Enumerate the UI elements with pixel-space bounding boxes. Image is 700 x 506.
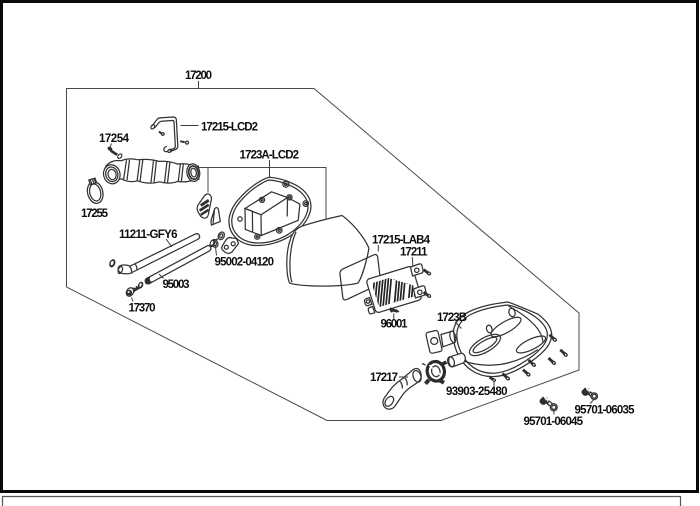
svg-text:17215-LAB4: 17215-LAB4 <box>372 235 431 247</box>
svg-text:95701-06045: 95701-06045 <box>524 416 584 428</box>
svg-text:95002-04120: 95002-04120 <box>215 257 275 269</box>
svg-text:96001: 96001 <box>381 319 409 331</box>
svg-text:17217: 17217 <box>370 372 398 384</box>
svg-text:95003: 95003 <box>163 279 190 291</box>
svg-text:11211-GFY6: 11211-GFY6 <box>119 229 178 241</box>
svg-text:1723A-LCD2: 1723A-LCD2 <box>240 150 300 162</box>
svg-text:17370: 17370 <box>129 303 156 315</box>
svg-text:17211: 17211 <box>400 247 428 259</box>
svg-text:95701-06035: 95701-06035 <box>575 405 636 417</box>
svg-text:17200: 17200 <box>185 70 212 82</box>
svg-text:17215-LCD2: 17215-LCD2 <box>201 122 258 134</box>
svg-text:17255: 17255 <box>81 208 109 220</box>
svg-text:1723B: 1723B <box>437 312 467 324</box>
svg-text:17254: 17254 <box>99 133 130 145</box>
svg-text:93903-25480: 93903-25480 <box>446 386 508 398</box>
